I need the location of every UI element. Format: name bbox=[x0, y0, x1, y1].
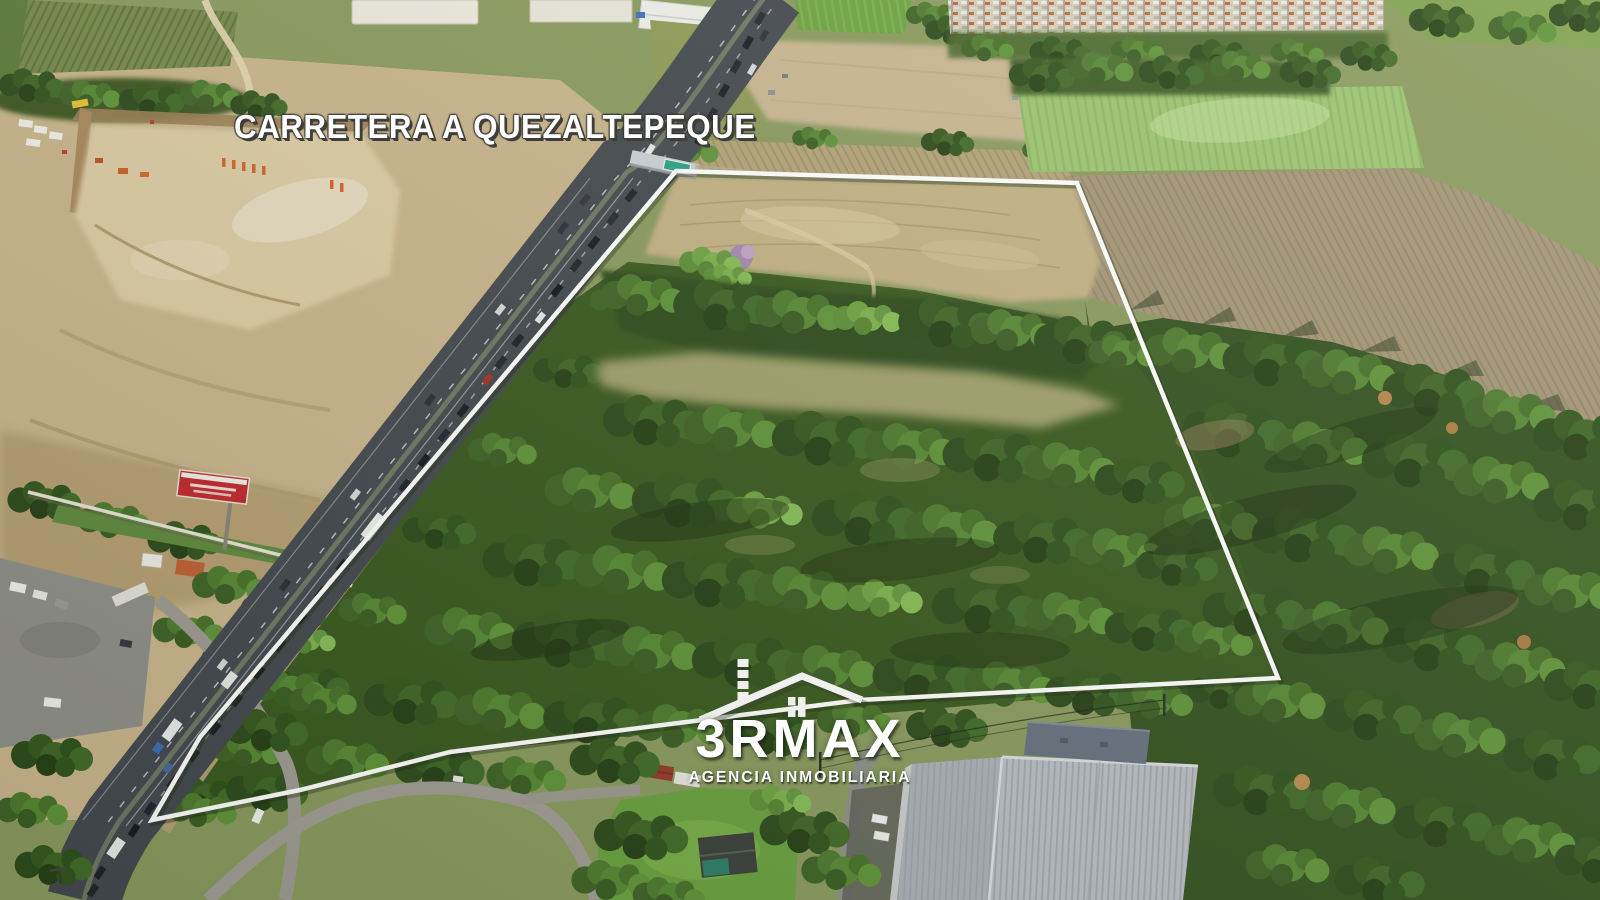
brand-name: 3RMAX bbox=[695, 712, 904, 766]
road-banner-label: CARRETERA A QUEZALTEPEQUE bbox=[234, 108, 756, 146]
brand-tagline: AGENCIA INMOBILIARIA bbox=[689, 770, 912, 786]
aerial-photo: CARRETERA A QUEZALTEPEQUE 3RMAX AGENCIA … bbox=[0, 0, 1600, 900]
